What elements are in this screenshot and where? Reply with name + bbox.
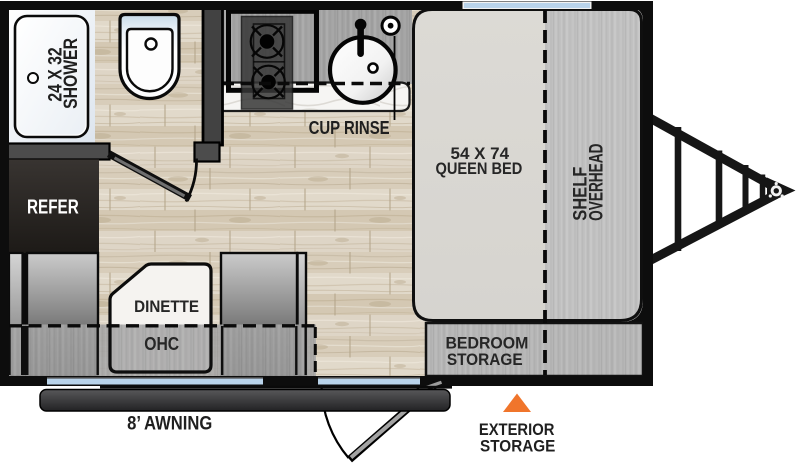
svg-text:DINETTE: DINETTE	[134, 298, 199, 316]
svg-text:OHC: OHC	[144, 333, 179, 355]
svg-text:8’ AWNING: 8’ AWNING	[127, 413, 212, 434]
svg-text:CUP RINSE: CUP RINSE	[309, 118, 390, 139]
svg-text:SHOWER: SHOWER	[60, 38, 82, 109]
svg-text:REFER: REFER	[27, 195, 79, 218]
svg-text:SHELF: SHELF	[569, 167, 590, 221]
svg-text:QUEEN BED: QUEEN BED	[435, 160, 522, 178]
svg-text:STORAGE: STORAGE	[480, 437, 556, 456]
svg-text:STORAGE: STORAGE	[447, 350, 523, 369]
